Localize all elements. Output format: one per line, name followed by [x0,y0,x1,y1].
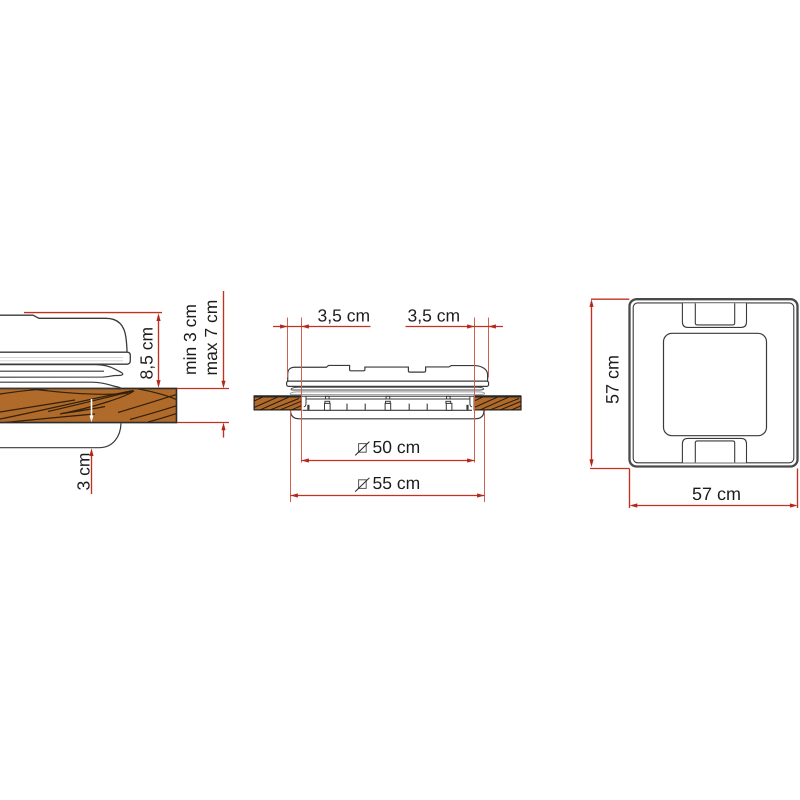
svg-text:50 cm: 50 cm [373,437,421,457]
svg-text:3,5 cm: 3,5 cm [408,305,461,325]
svg-text:min 3 cm: min 3 cm [180,304,200,375]
svg-text:max 7 cm: max 7 cm [201,300,221,376]
svg-text:57 cm: 57 cm [692,484,741,504]
svg-text:57 cm: 57 cm [603,355,623,404]
svg-text:55 cm: 55 cm [373,473,421,493]
svg-text:3 cm: 3 cm [74,453,94,491]
svg-text:8,5 cm: 8,5 cm [137,327,157,380]
svg-text:3,5 cm: 3,5 cm [318,305,371,325]
